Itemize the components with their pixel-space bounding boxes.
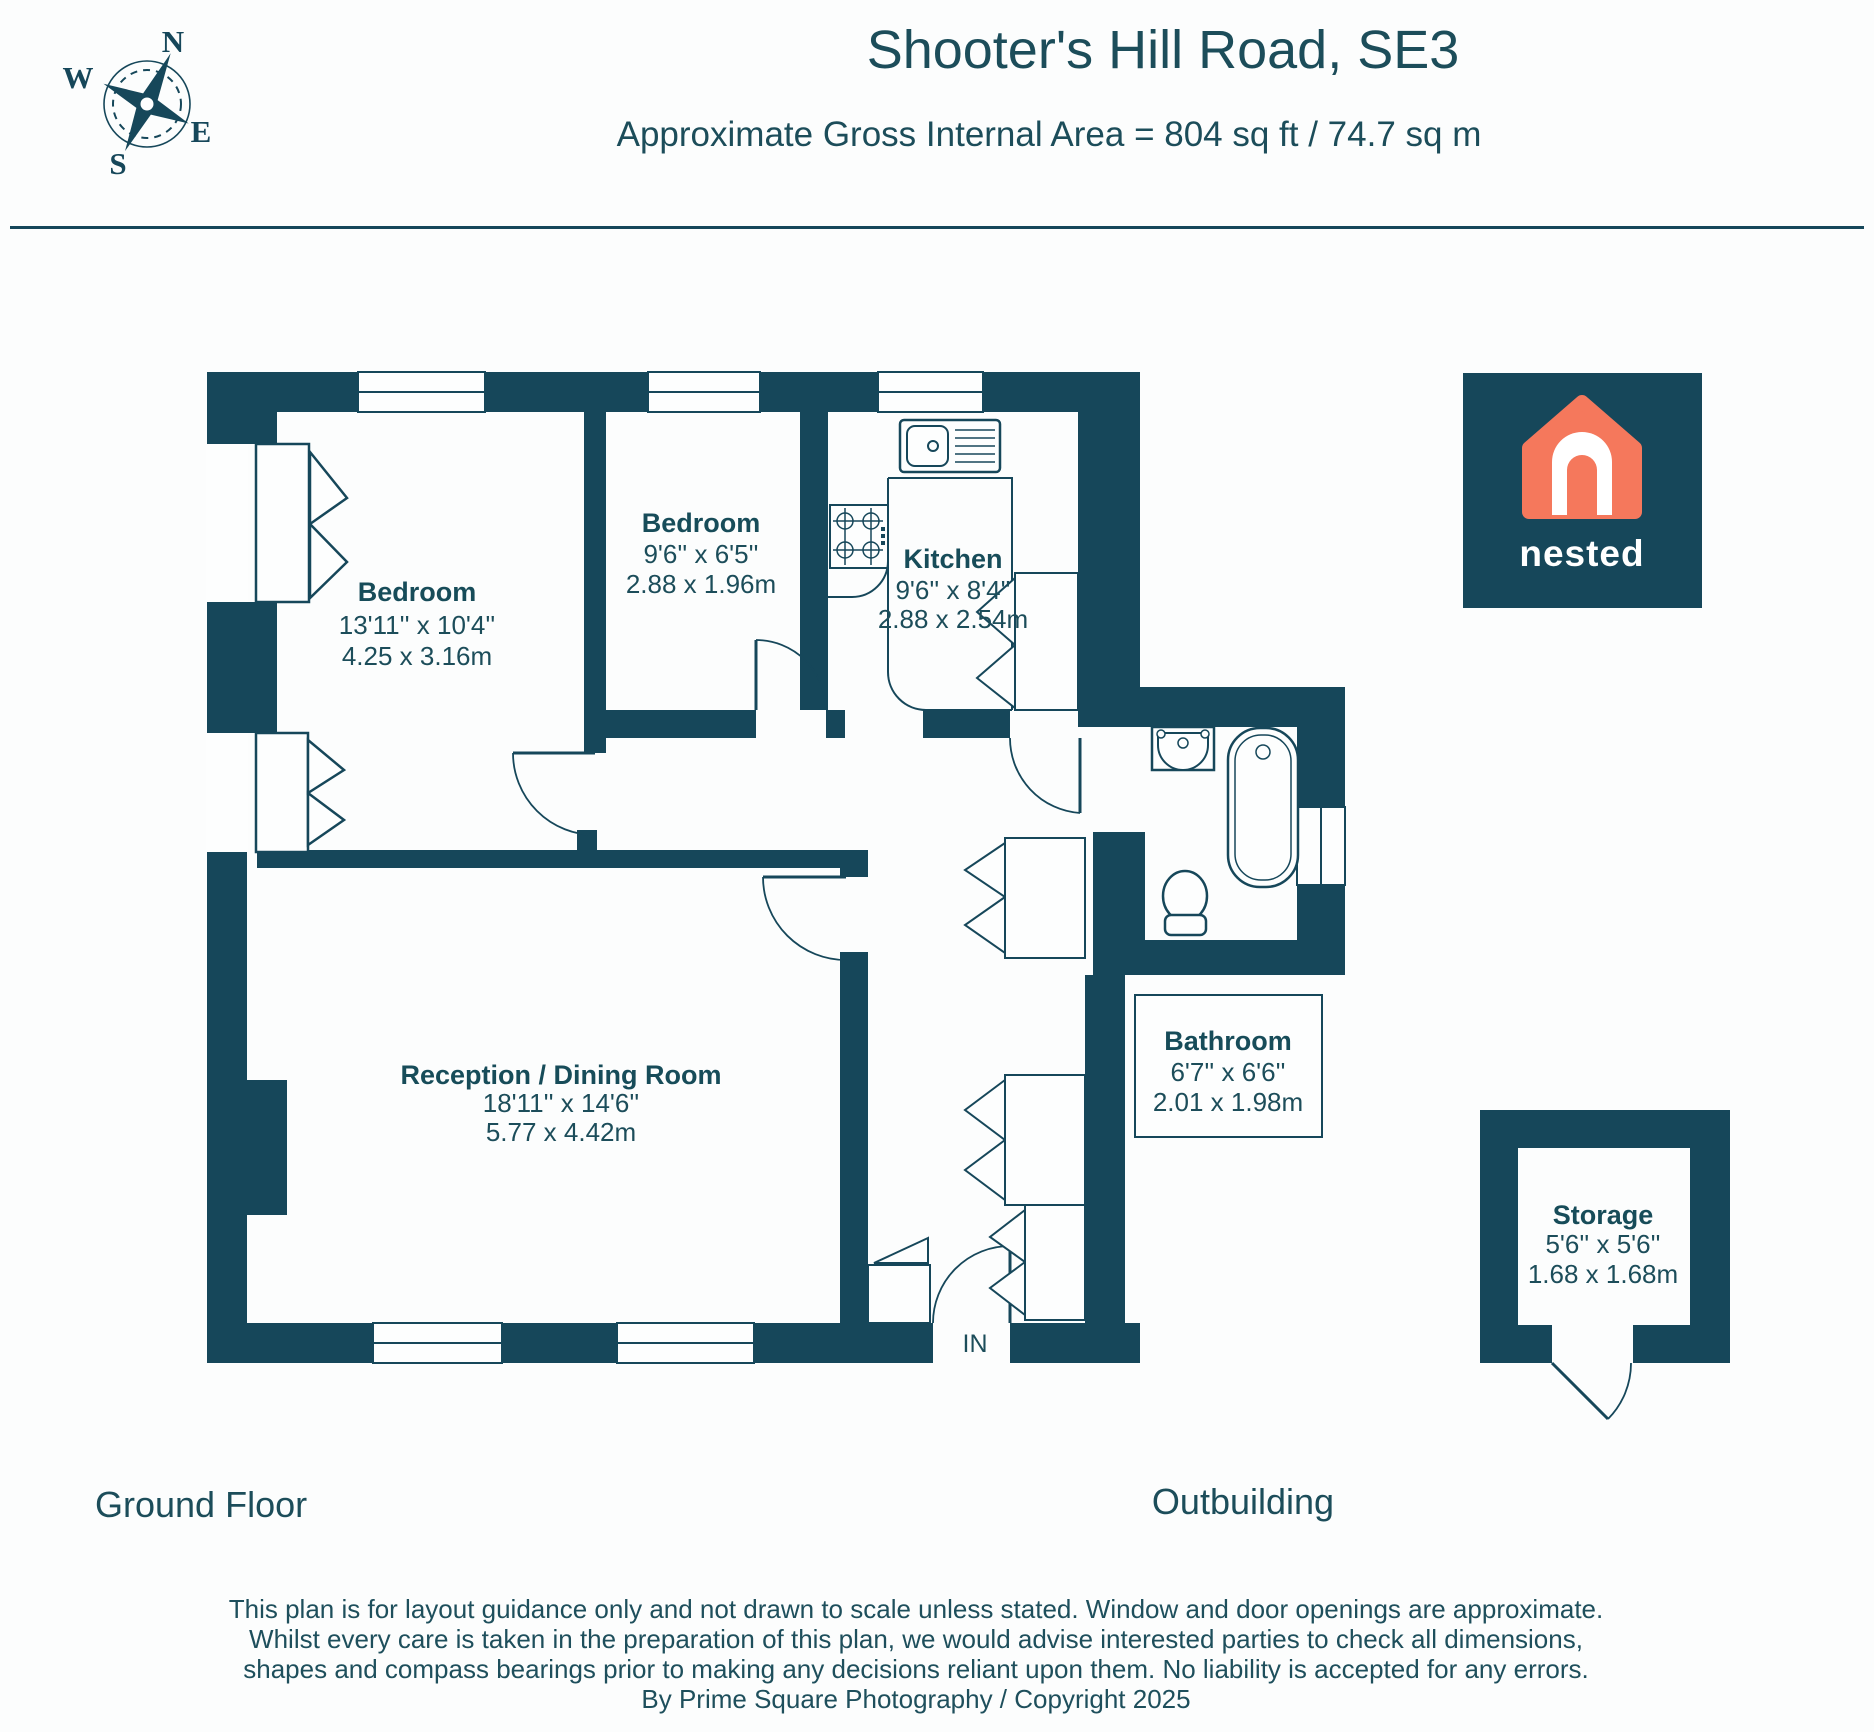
- room-dim-metric: 1.68 x 1.68m: [1528, 1259, 1678, 1289]
- cupboard: [1025, 1205, 1085, 1320]
- room-dim-imperial: 5'6'' x 5'6'': [1545, 1229, 1660, 1259]
- floorplan-canvas: Shooter's Hill Road, SE3 Approximate Gro…: [0, 0, 1874, 1732]
- room-dim-metric: 2.01 x 1.98m: [1153, 1087, 1303, 1117]
- bathtub-drain: [1256, 745, 1270, 759]
- room-label-kitchen: Kitchen 9'6'' x 8'4'' 2.88 x 2.54m: [878, 544, 1028, 634]
- window-gap: [206, 733, 248, 852]
- compass-e: E: [191, 114, 212, 149]
- wall: [1078, 412, 1140, 727]
- wall: [1480, 1325, 1552, 1363]
- window-chevron-icon: [310, 524, 347, 598]
- hallway-cupboards: [868, 838, 1085, 1323]
- wall: [584, 412, 606, 753]
- window-chevron-icon: [308, 793, 344, 845]
- cupboard-chevron-icon: [965, 1080, 1005, 1140]
- cupboard: [868, 1265, 930, 1323]
- cupboard-chevron-icon: [965, 897, 1005, 953]
- disclaimer-line: Whilst every care is taken in the prepar…: [249, 1624, 1583, 1654]
- unit-chevron-icon: [977, 645, 1015, 708]
- header: Shooter's Hill Road, SE3 Approximate Gro…: [10, 20, 1864, 229]
- kitchen-unit: [1015, 573, 1078, 710]
- room-label-bathroom: Bathroom 6'7'' x 6'6'' 2.01 x 1.98m: [1153, 1026, 1303, 1117]
- wall: [1297, 687, 1345, 807]
- cupboard-chevron-icon: [990, 1210, 1025, 1262]
- header-divider: [10, 226, 1864, 229]
- compass-s: S: [109, 146, 126, 181]
- room-dim-metric: 2.88 x 2.54m: [878, 604, 1028, 634]
- wall: [1093, 832, 1145, 940]
- hob: [830, 505, 888, 568]
- room-dim-imperial: 18'11'' x 14'6'': [483, 1088, 640, 1118]
- window-gap: [206, 444, 248, 602]
- bathroom-fixtures: [1152, 721, 1298, 935]
- wall: [1085, 975, 1125, 1323]
- walls: [207, 372, 1345, 1363]
- toilet: [1163, 871, 1207, 921]
- cupboard-chevron-icon: [965, 1140, 1005, 1200]
- wall: [1633, 1325, 1730, 1363]
- wall: [826, 710, 845, 738]
- wall: [584, 710, 756, 738]
- door-arc: [1608, 1363, 1631, 1419]
- compass-w: W: [63, 60, 94, 95]
- room-dim-metric: 5.77 x 4.42m: [486, 1117, 636, 1147]
- cupboard: [1005, 1075, 1085, 1205]
- cupboard-chevron-icon: [990, 1262, 1025, 1315]
- page-subtitle: Approximate Gross Internal Area = 804 sq…: [617, 115, 1482, 154]
- wall: [247, 412, 277, 444]
- outbuilding-label: Outbuilding: [1152, 1481, 1334, 1522]
- window-chevron-icon: [310, 452, 347, 524]
- cupboard: [1005, 838, 1085, 958]
- room-dim-imperial: 13'11'' x 10'4'': [339, 610, 496, 640]
- wall: [800, 412, 828, 710]
- room-label-bedroom2: Bedroom 9'6'' x 6'5'' 2.88 x 1.96m: [626, 508, 776, 599]
- disclaimer-line: By Prime Square Photography / Copyright …: [641, 1684, 1190, 1714]
- room-name: Reception / Dining Room: [401, 1060, 722, 1090]
- casement-window: [256, 444, 309, 602]
- ground-floor-label: Ground Floor: [95, 1484, 307, 1525]
- wall: [597, 850, 840, 868]
- room-label-bedroom1: Bedroom 13'11'' x 10'4'' 4.25 x 3.16m: [339, 577, 496, 671]
- wall: [923, 710, 1010, 738]
- room-dim-imperial: 9'6'' x 8'4'': [895, 575, 1010, 605]
- compass-n: N: [162, 24, 184, 59]
- room-name: Storage: [1553, 1200, 1654, 1230]
- wall: [207, 1323, 933, 1363]
- wall: [1093, 940, 1345, 975]
- room-label-reception: Reception / Dining Room 18'11'' x 14'6''…: [401, 1060, 722, 1147]
- room-dim-imperial: 9'6'' x 6'5'': [643, 539, 758, 569]
- hob-controls: [881, 527, 885, 545]
- disclaimer-line: shapes and compass bearings prior to mak…: [243, 1654, 1588, 1684]
- casement-window: [256, 733, 308, 852]
- room-name: Bedroom: [358, 577, 477, 607]
- window-chevron-icon: [308, 740, 344, 793]
- room-name: Kitchen: [903, 544, 1002, 574]
- wall: [1010, 1323, 1140, 1363]
- basin-drain: [1178, 738, 1188, 748]
- door-arc: [513, 753, 595, 835]
- door-leaf: [1552, 1363, 1608, 1419]
- brand-wordmark: nested: [1519, 533, 1644, 574]
- disclaimer: This plan is for layout guidance only an…: [229, 1594, 1603, 1714]
- disclaimer-line: This plan is for layout guidance only an…: [229, 1594, 1603, 1624]
- door-arc: [763, 877, 846, 960]
- cupboard-chevron-icon: [965, 843, 1005, 897]
- room-label-storage: Storage 5'6'' x 5'6'' 1.68 x 1.68m: [1528, 1200, 1678, 1289]
- entrance-in-label: IN: [963, 1330, 988, 1358]
- room-dim-metric: 4.25 x 3.16m: [342, 641, 492, 671]
- house-arch-inner: [1567, 455, 1597, 515]
- page-title: Shooter's Hill Road, SE3: [867, 20, 1460, 80]
- chimney-breast: [247, 1080, 287, 1215]
- room-name: Bathroom: [1164, 1026, 1292, 1056]
- sink-drain: [928, 441, 938, 451]
- room-dim-metric: 2.88 x 1.96m: [626, 569, 776, 599]
- cupboard-chevron-icon: [874, 1238, 928, 1263]
- room-name: Bedroom: [642, 508, 761, 538]
- door-arc: [1010, 738, 1080, 813]
- room-dim-imperial: 6'7'' x 6'6'': [1170, 1057, 1285, 1087]
- wall: [840, 952, 868, 1323]
- nested-logo: nested: [1463, 373, 1702, 608]
- toilet-cistern: [1165, 915, 1206, 935]
- compass-rose-icon: N W E S: [63, 24, 213, 181]
- wall: [247, 602, 277, 733]
- wall: [840, 850, 868, 877]
